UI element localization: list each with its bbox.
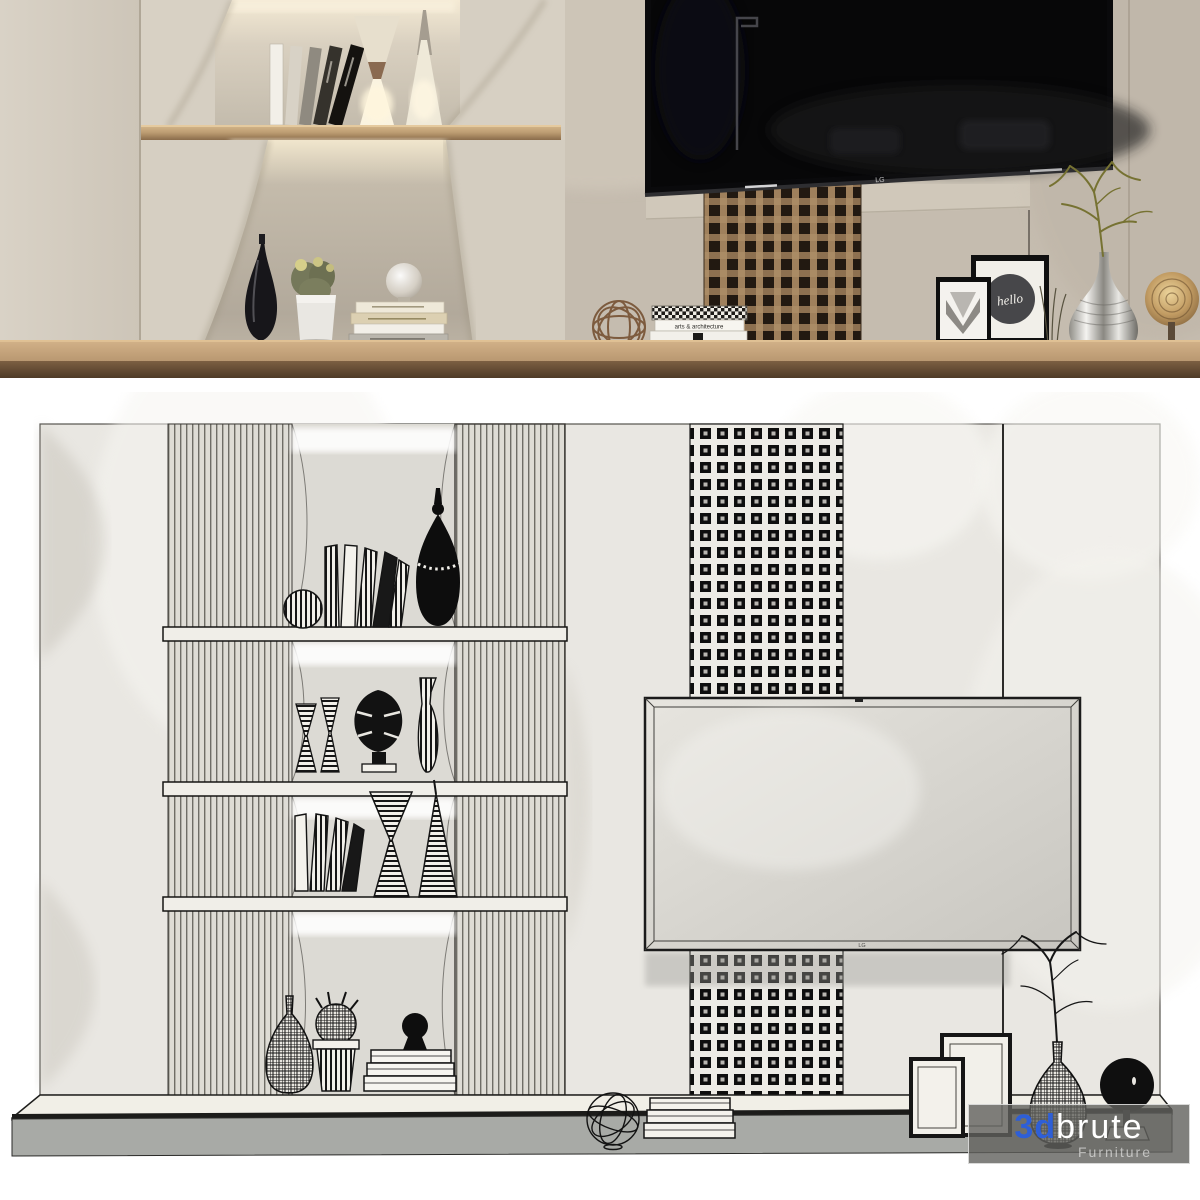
wf-tv-brand-label: LG (858, 943, 865, 949)
wf-tv: LG (645, 698, 1080, 950)
photo-render: LG arts & architecture THE FASHION BOOK … (0, 0, 1200, 378)
counter-top (0, 340, 1200, 361)
wf-ribbed-column-right (455, 424, 565, 1095)
glass-ball (386, 263, 422, 299)
book-spine-arts: arts & architecture (675, 325, 724, 331)
tv-screen: LG (645, 0, 1150, 195)
wf-stamp (402, 1013, 428, 1050)
brand-wordmark: 3dbrute (1014, 1110, 1143, 1144)
brand-subtitle: Furniture (1078, 1145, 1152, 1159)
shelf-board (141, 125, 561, 140)
wf-book-stack (364, 1050, 456, 1091)
photo-frame-small (936, 277, 991, 344)
wall-seam (1128, 0, 1130, 345)
cabinet-door (0, 0, 140, 345)
tv-brand-label: LG (875, 177, 885, 184)
brand-watermark: 3dbrute Furniture (968, 1104, 1190, 1164)
product-showcase: LG arts & architecture THE FASHION BOOK … (0, 0, 1200, 1200)
wf-striped-ball (284, 590, 322, 628)
wireframe-render: LG (0, 392, 1200, 1160)
wf-tv-shadow (645, 952, 1010, 986)
brand-prefix: 3d (1014, 1110, 1056, 1144)
counter-front (0, 361, 1200, 378)
brand-name: brute (1056, 1110, 1144, 1144)
wf-plinth-books (644, 1098, 735, 1138)
niche-light (220, 0, 455, 12)
wf-ribbed-column-left (168, 424, 292, 1095)
wf-leaning-books-1 (325, 545, 409, 627)
